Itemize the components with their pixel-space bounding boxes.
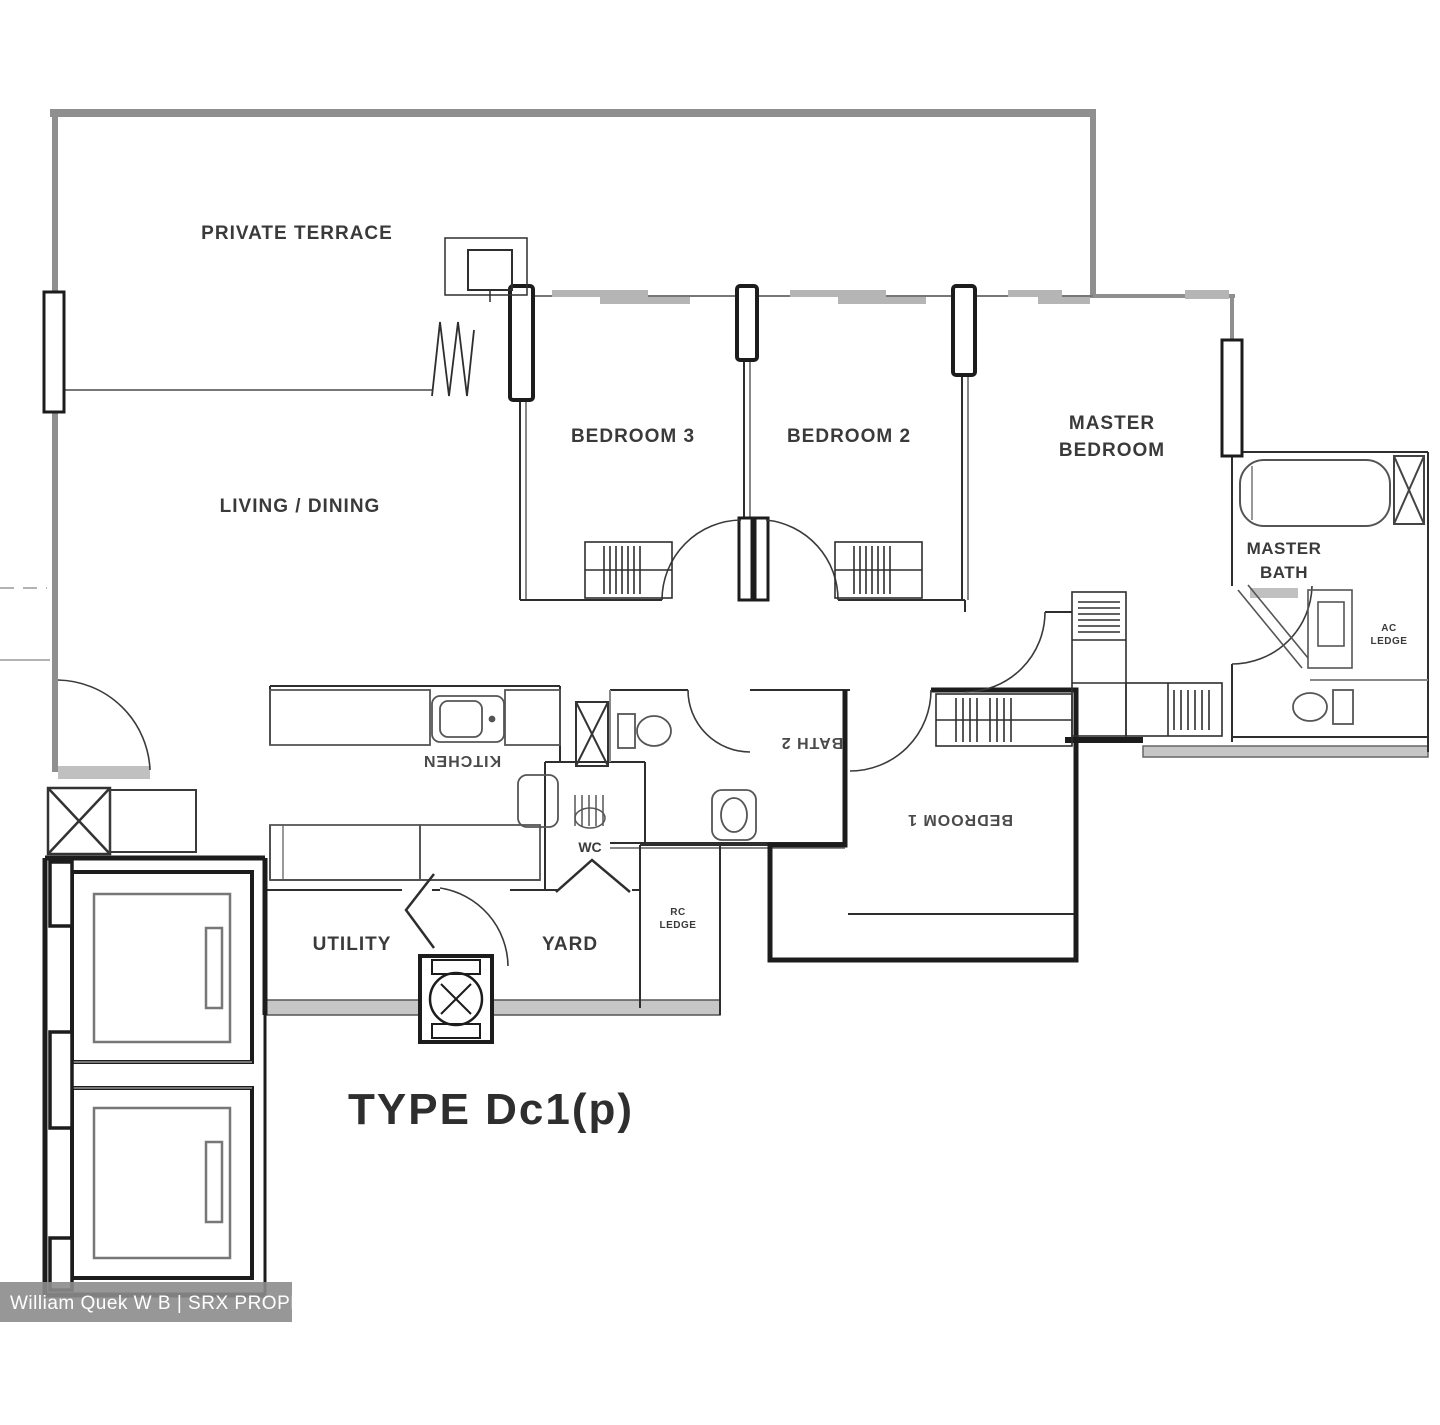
label-private-terrace: PRIVATE TERRACE — [201, 223, 393, 244]
svg-text:BATH: BATH — [1260, 563, 1308, 582]
floor-plan-page: PRIVATE TERRACE LIVING / DINING BEDROOM … — [0, 0, 1440, 1425]
label-master-bedroom: MASTER BEDROOM — [1059, 413, 1165, 461]
wardrobe-bedroom2 — [835, 542, 922, 598]
watermark-text: William Quek W B | SRX PROPERTY — [10, 1293, 343, 1314]
label-bedroom3: BEDROOM 3 — [571, 426, 695, 447]
toilet-master — [1293, 690, 1353, 724]
window-master-east — [1222, 340, 1242, 456]
kitchen-hob — [518, 775, 558, 827]
entrance-door-arc — [58, 680, 150, 770]
floor-trap-duct — [420, 956, 492, 1042]
toilet-bath2 — [618, 714, 671, 748]
toilet-wc — [575, 795, 605, 828]
svg-text:MASTER: MASTER — [1247, 539, 1322, 558]
structural-black-walls — [45, 690, 1143, 1295]
label-bath2: BATH 2 — [781, 734, 844, 751]
bath-ledge-hatch — [1394, 456, 1424, 524]
wardrobes — [585, 542, 1222, 746]
wardrobe-bedroom3 — [585, 542, 672, 598]
lobby-frame-mid — [50, 1032, 72, 1128]
label-kitchen: KITCHEN — [423, 752, 501, 769]
label-master-bath: MASTER BATH — [1247, 539, 1322, 582]
svg-text:MASTER: MASTER — [1069, 413, 1155, 434]
kitchen-fixtures — [270, 690, 560, 880]
plan-type-title: TYPE Dc1(p) — [348, 1085, 634, 1134]
lobby-frame-top — [50, 862, 72, 926]
label-living-dining: LIVING / DINING — [220, 496, 381, 517]
watermark: William Quek W B | SRX PROPERTY — [0, 1282, 343, 1322]
db-cabinet — [110, 790, 196, 852]
label-utility: UTILITY — [313, 934, 392, 955]
label-yard: YARD — [542, 934, 598, 955]
svg-text:LEDGE: LEDGE — [1371, 636, 1408, 647]
neighbour-reference-lines — [0, 588, 50, 660]
entrance-door-leaf — [58, 766, 150, 779]
wardrobe-bedroom1 — [936, 694, 1072, 746]
lift-2 — [72, 1088, 252, 1278]
utility-folding-door — [406, 874, 434, 948]
svg-text:RC: RC — [670, 907, 685, 918]
bedroom-doors — [662, 518, 1312, 771]
window-living-west — [44, 292, 64, 412]
entrance-area — [48, 680, 196, 854]
svg-text:BEDROOM: BEDROOM — [1059, 440, 1165, 461]
duct-hatch-box — [576, 702, 608, 766]
svg-text:LEDGE: LEDGE — [660, 920, 697, 931]
wardrobe-master — [1072, 592, 1222, 736]
kitchen-sink — [432, 696, 504, 742]
floor-plan-drawing: PRIVATE TERRACE LIVING / DINING BEDROOM … — [0, 0, 1440, 1425]
label-bedroom2: BEDROOM 2 — [787, 426, 911, 447]
kitchen-counter-corner — [505, 690, 560, 745]
wc-folding-door — [556, 860, 630, 892]
kitchen-counter-top — [270, 690, 430, 745]
lift-lobby — [50, 862, 252, 1290]
accordion-door — [432, 322, 474, 396]
sink-bath2 — [712, 790, 756, 840]
label-ac-ledge: AC LEDGE — [1371, 623, 1408, 647]
bathtub — [1240, 460, 1390, 526]
label-wc: WC — [578, 839, 601, 855]
label-rc-ledge: RC LEDGE — [660, 907, 697, 931]
kitchen-counter-bottom-left — [270, 825, 420, 880]
riser-hatch-box — [48, 788, 110, 854]
svg-text:AC: AC — [1381, 623, 1396, 634]
lift-1 — [72, 872, 252, 1062]
kitchen-counter-bottom-right — [420, 825, 540, 880]
label-bedroom1: BEDROOM 1 — [907, 811, 1013, 828]
